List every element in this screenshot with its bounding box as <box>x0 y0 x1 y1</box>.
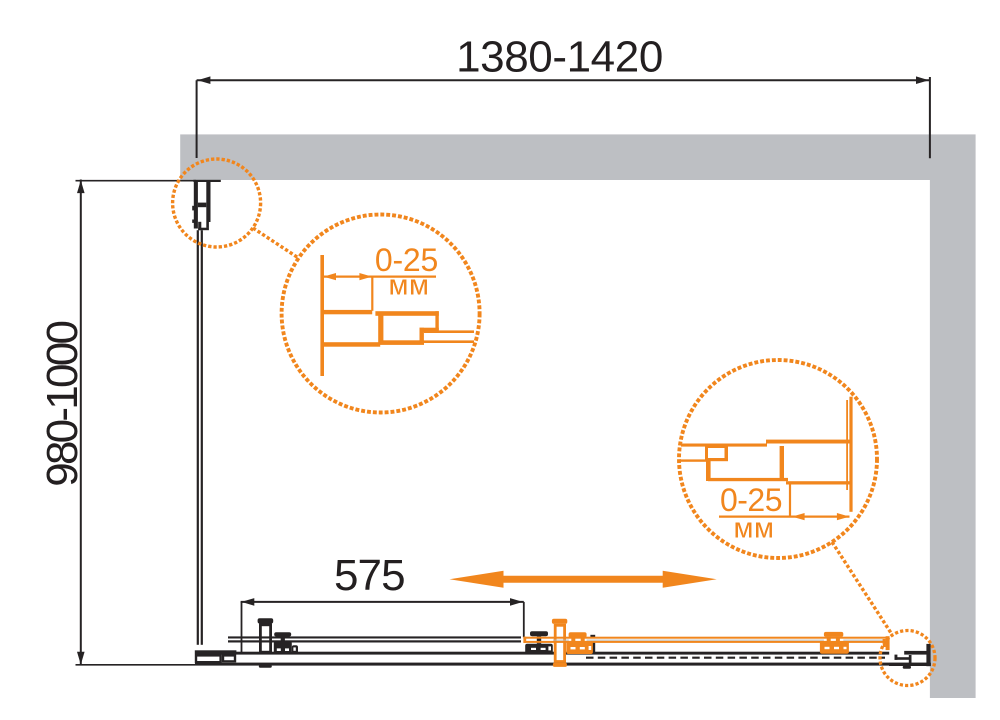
svg-text:575: 575 <box>334 551 405 600</box>
svg-text:1380-1420: 1380-1420 <box>456 32 663 81</box>
svg-text:мм: мм <box>388 270 429 302</box>
svg-text:980-1000: 980-1000 <box>38 322 87 487</box>
svg-text:мм: мм <box>733 513 774 545</box>
